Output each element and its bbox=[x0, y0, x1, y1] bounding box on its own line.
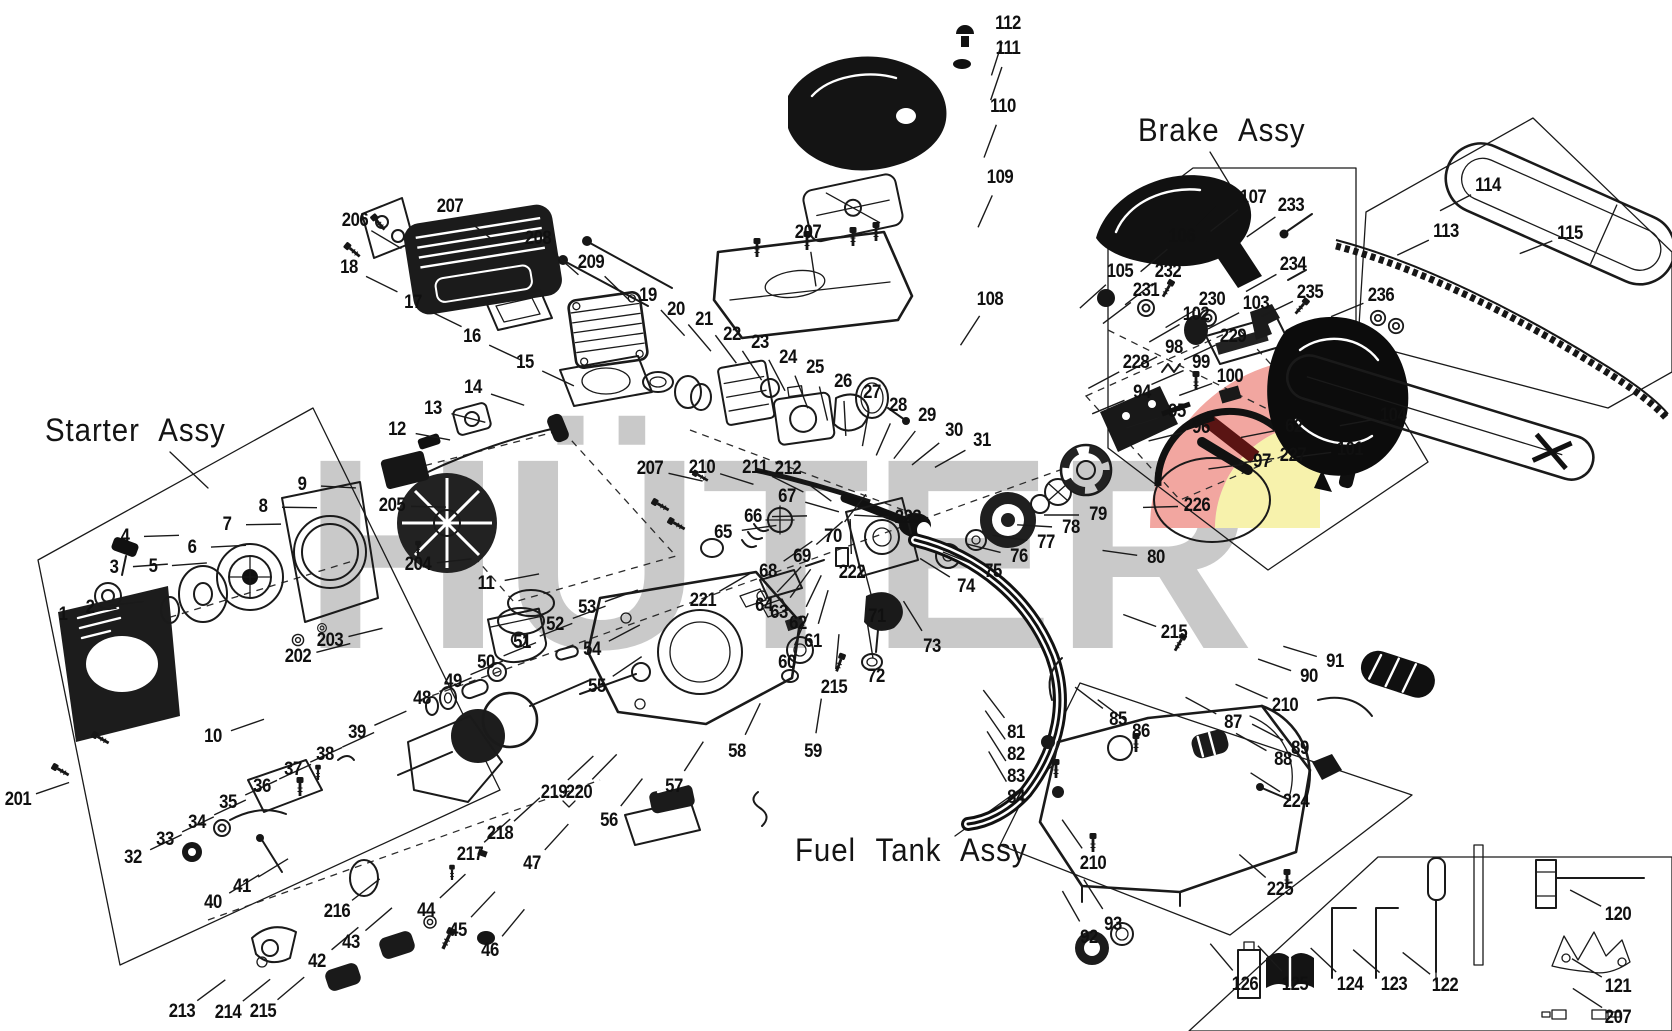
leader-107 bbox=[1211, 210, 1239, 232]
leader-2 bbox=[109, 601, 144, 605]
leader-15 bbox=[542, 371, 574, 386]
leader-204 bbox=[437, 559, 472, 563]
leader-212 bbox=[803, 480, 831, 501]
leader-4 bbox=[144, 535, 179, 536]
leader-105 bbox=[1080, 285, 1106, 308]
leader-61 bbox=[818, 590, 828, 624]
leader-17 bbox=[430, 311, 461, 326]
leader-24 bbox=[795, 376, 808, 409]
leader-45 bbox=[471, 892, 495, 917]
leader-48 bbox=[439, 678, 471, 692]
leader-66 bbox=[772, 516, 807, 517]
leader-73 bbox=[904, 601, 922, 631]
leader-18 bbox=[366, 276, 397, 291]
leader-7 bbox=[246, 524, 281, 525]
leader-223 bbox=[854, 515, 889, 517]
leader-63 bbox=[790, 569, 811, 597]
leader-95 bbox=[1125, 418, 1158, 429]
leader-58 bbox=[745, 703, 760, 735]
leader-207 bbox=[465, 219, 493, 240]
leader-120 bbox=[1570, 890, 1601, 906]
leader-91 bbox=[1283, 646, 1316, 656]
leader-74 bbox=[920, 559, 950, 577]
leader-85 bbox=[1075, 687, 1103, 708]
leader-124 bbox=[1311, 948, 1337, 972]
leader-37 bbox=[310, 748, 342, 763]
leader-219 bbox=[568, 756, 594, 780]
leader-25 bbox=[819, 386, 827, 420]
leader-59 bbox=[816, 699, 821, 734]
leader-231 bbox=[1103, 302, 1131, 323]
leader-81 bbox=[983, 690, 1004, 718]
leader-114 bbox=[1440, 195, 1471, 211]
leader-28 bbox=[876, 423, 890, 455]
leader-234 bbox=[1246, 274, 1276, 291]
leader-207 bbox=[669, 473, 703, 481]
leader-206 bbox=[371, 231, 401, 249]
leader-22 bbox=[742, 351, 761, 380]
leader-36 bbox=[279, 764, 311, 779]
leader-39 bbox=[374, 711, 406, 725]
leader-90 bbox=[1258, 659, 1291, 671]
leader-76 bbox=[967, 544, 1001, 552]
leader-102 bbox=[1149, 325, 1179, 343]
leader-69 bbox=[816, 521, 842, 544]
leader-34 bbox=[214, 800, 246, 815]
leader-216 bbox=[352, 879, 380, 900]
leader-125 bbox=[1258, 946, 1282, 971]
leader-51 bbox=[540, 623, 573, 636]
leader-75 bbox=[943, 552, 976, 565]
leader-9 bbox=[321, 486, 356, 488]
leader-5 bbox=[172, 563, 207, 566]
leader-235 bbox=[1261, 301, 1293, 316]
leader-110 bbox=[984, 125, 996, 158]
leader-1 bbox=[82, 608, 117, 612]
leader-92 bbox=[1062, 891, 1079, 921]
leader-3 bbox=[133, 564, 168, 567]
leader-108 bbox=[961, 316, 980, 345]
leader-208 bbox=[552, 252, 578, 275]
leader-6 bbox=[211, 545, 246, 547]
leader-100 bbox=[1179, 383, 1212, 395]
leader-11 bbox=[505, 574, 539, 581]
leader-93 bbox=[1084, 880, 1103, 909]
leader-109 bbox=[978, 195, 992, 227]
leader-62 bbox=[1241, 431, 1275, 438]
leader-230 bbox=[1166, 310, 1196, 328]
leader-98 bbox=[1126, 357, 1157, 373]
leader-41 bbox=[258, 859, 288, 877]
leader-29 bbox=[894, 431, 915, 459]
leader-35 bbox=[245, 780, 277, 795]
leader-53 bbox=[605, 590, 638, 602]
leader-26 bbox=[844, 401, 846, 436]
leader-33 bbox=[182, 817, 214, 832]
leader-56 bbox=[621, 779, 643, 806]
leader-115 bbox=[1520, 241, 1553, 254]
starter-assy-label: Starter Assy bbox=[45, 412, 226, 449]
leader-224 bbox=[1251, 773, 1280, 792]
leader-210 bbox=[720, 474, 753, 485]
parts-diagram-page: HÜTER bbox=[0, 0, 1672, 1031]
leader-54 bbox=[609, 625, 640, 641]
leader-31 bbox=[935, 450, 966, 467]
leader-228 bbox=[1088, 372, 1119, 388]
leader-211 bbox=[772, 476, 803, 492]
leader-233 bbox=[1247, 217, 1276, 237]
leader-227 bbox=[1239, 459, 1274, 464]
leader-87 bbox=[1186, 697, 1217, 714]
leader-12 bbox=[416, 434, 450, 440]
leader-65 bbox=[742, 525, 777, 530]
leader-96 bbox=[1149, 433, 1183, 441]
leader-52 bbox=[573, 606, 606, 618]
leader-89 bbox=[1252, 724, 1283, 740]
leader-32 bbox=[150, 835, 182, 850]
leader-42 bbox=[332, 927, 359, 949]
callout-leader-lines bbox=[0, 0, 1672, 1031]
leader-101 bbox=[1296, 452, 1331, 457]
leader-71 bbox=[863, 565, 872, 599]
leader-19 bbox=[661, 310, 685, 336]
leader-236 bbox=[1331, 303, 1363, 316]
leader-97 bbox=[1208, 464, 1243, 468]
leader-16 bbox=[489, 345, 521, 360]
leader-207 bbox=[811, 252, 816, 287]
leader-214 bbox=[243, 979, 270, 1001]
fuel-tank-assy-label: Fuel Tank Assy bbox=[795, 832, 1027, 869]
leader-49 bbox=[471, 661, 503, 675]
leader-215 bbox=[836, 634, 839, 669]
leader-113 bbox=[1397, 240, 1429, 255]
leader-106 bbox=[1141, 249, 1168, 271]
leader-50 bbox=[504, 643, 536, 656]
leader-123 bbox=[1353, 950, 1379, 973]
leader-201 bbox=[36, 783, 69, 794]
leader-94 bbox=[1092, 400, 1124, 413]
leader-14 bbox=[491, 394, 524, 405]
leader-68 bbox=[784, 541, 813, 561]
leader-218 bbox=[514, 798, 540, 822]
leader-203 bbox=[348, 628, 382, 636]
leader-77 bbox=[993, 535, 1028, 540]
leader-20 bbox=[688, 324, 711, 351]
leader-13 bbox=[451, 414, 485, 423]
leader-70 bbox=[845, 494, 866, 522]
leader-210 bbox=[1062, 820, 1082, 849]
leader-215 bbox=[1123, 615, 1156, 627]
leader-220 bbox=[592, 754, 616, 779]
leader-30 bbox=[912, 443, 939, 465]
leader-55 bbox=[613, 657, 642, 677]
leader-80 bbox=[1103, 550, 1138, 555]
leader-225 bbox=[1239, 855, 1265, 878]
leader-202 bbox=[316, 644, 350, 653]
leader-46 bbox=[502, 909, 524, 936]
leader-215 bbox=[278, 977, 305, 1000]
leader-38 bbox=[342, 733, 374, 748]
leader-207 bbox=[1573, 988, 1602, 1007]
leader-84 bbox=[989, 751, 1007, 781]
leader-57 bbox=[684, 742, 703, 771]
leader-126 bbox=[1210, 944, 1233, 971]
leader-99 bbox=[1151, 371, 1183, 385]
leader-221 bbox=[719, 574, 749, 592]
leader-217 bbox=[484, 819, 510, 842]
leader-205 bbox=[411, 506, 446, 507]
leader-67 bbox=[805, 502, 839, 512]
leader-86 bbox=[1098, 700, 1126, 721]
leader-210 bbox=[1236, 684, 1268, 698]
leader-43 bbox=[365, 908, 392, 931]
leader-27 bbox=[862, 412, 868, 446]
leader-226 bbox=[1143, 506, 1178, 507]
leader-121 bbox=[1572, 959, 1602, 977]
leader-213 bbox=[197, 980, 225, 1001]
leader-10 bbox=[231, 719, 264, 731]
leader-47 bbox=[545, 824, 569, 850]
brake-assy-label: Brake Assy bbox=[1138, 112, 1305, 149]
leader-232 bbox=[1125, 284, 1153, 305]
leader-62 bbox=[806, 575, 821, 607]
leader-229 bbox=[1184, 345, 1216, 360]
leader-222 bbox=[850, 519, 851, 554]
leader-23 bbox=[769, 360, 785, 391]
leader-209 bbox=[605, 276, 630, 300]
leader-21 bbox=[715, 335, 736, 363]
leader-78 bbox=[1017, 525, 1052, 527]
leader-72 bbox=[867, 624, 873, 659]
leader-60 bbox=[794, 613, 808, 645]
leader-122 bbox=[1403, 952, 1430, 974]
leader-44 bbox=[440, 874, 466, 898]
leader-88 bbox=[1236, 733, 1266, 750]
leader-104 bbox=[1340, 419, 1374, 425]
leader-103 bbox=[1208, 313, 1239, 329]
leader-40 bbox=[229, 875, 259, 893]
